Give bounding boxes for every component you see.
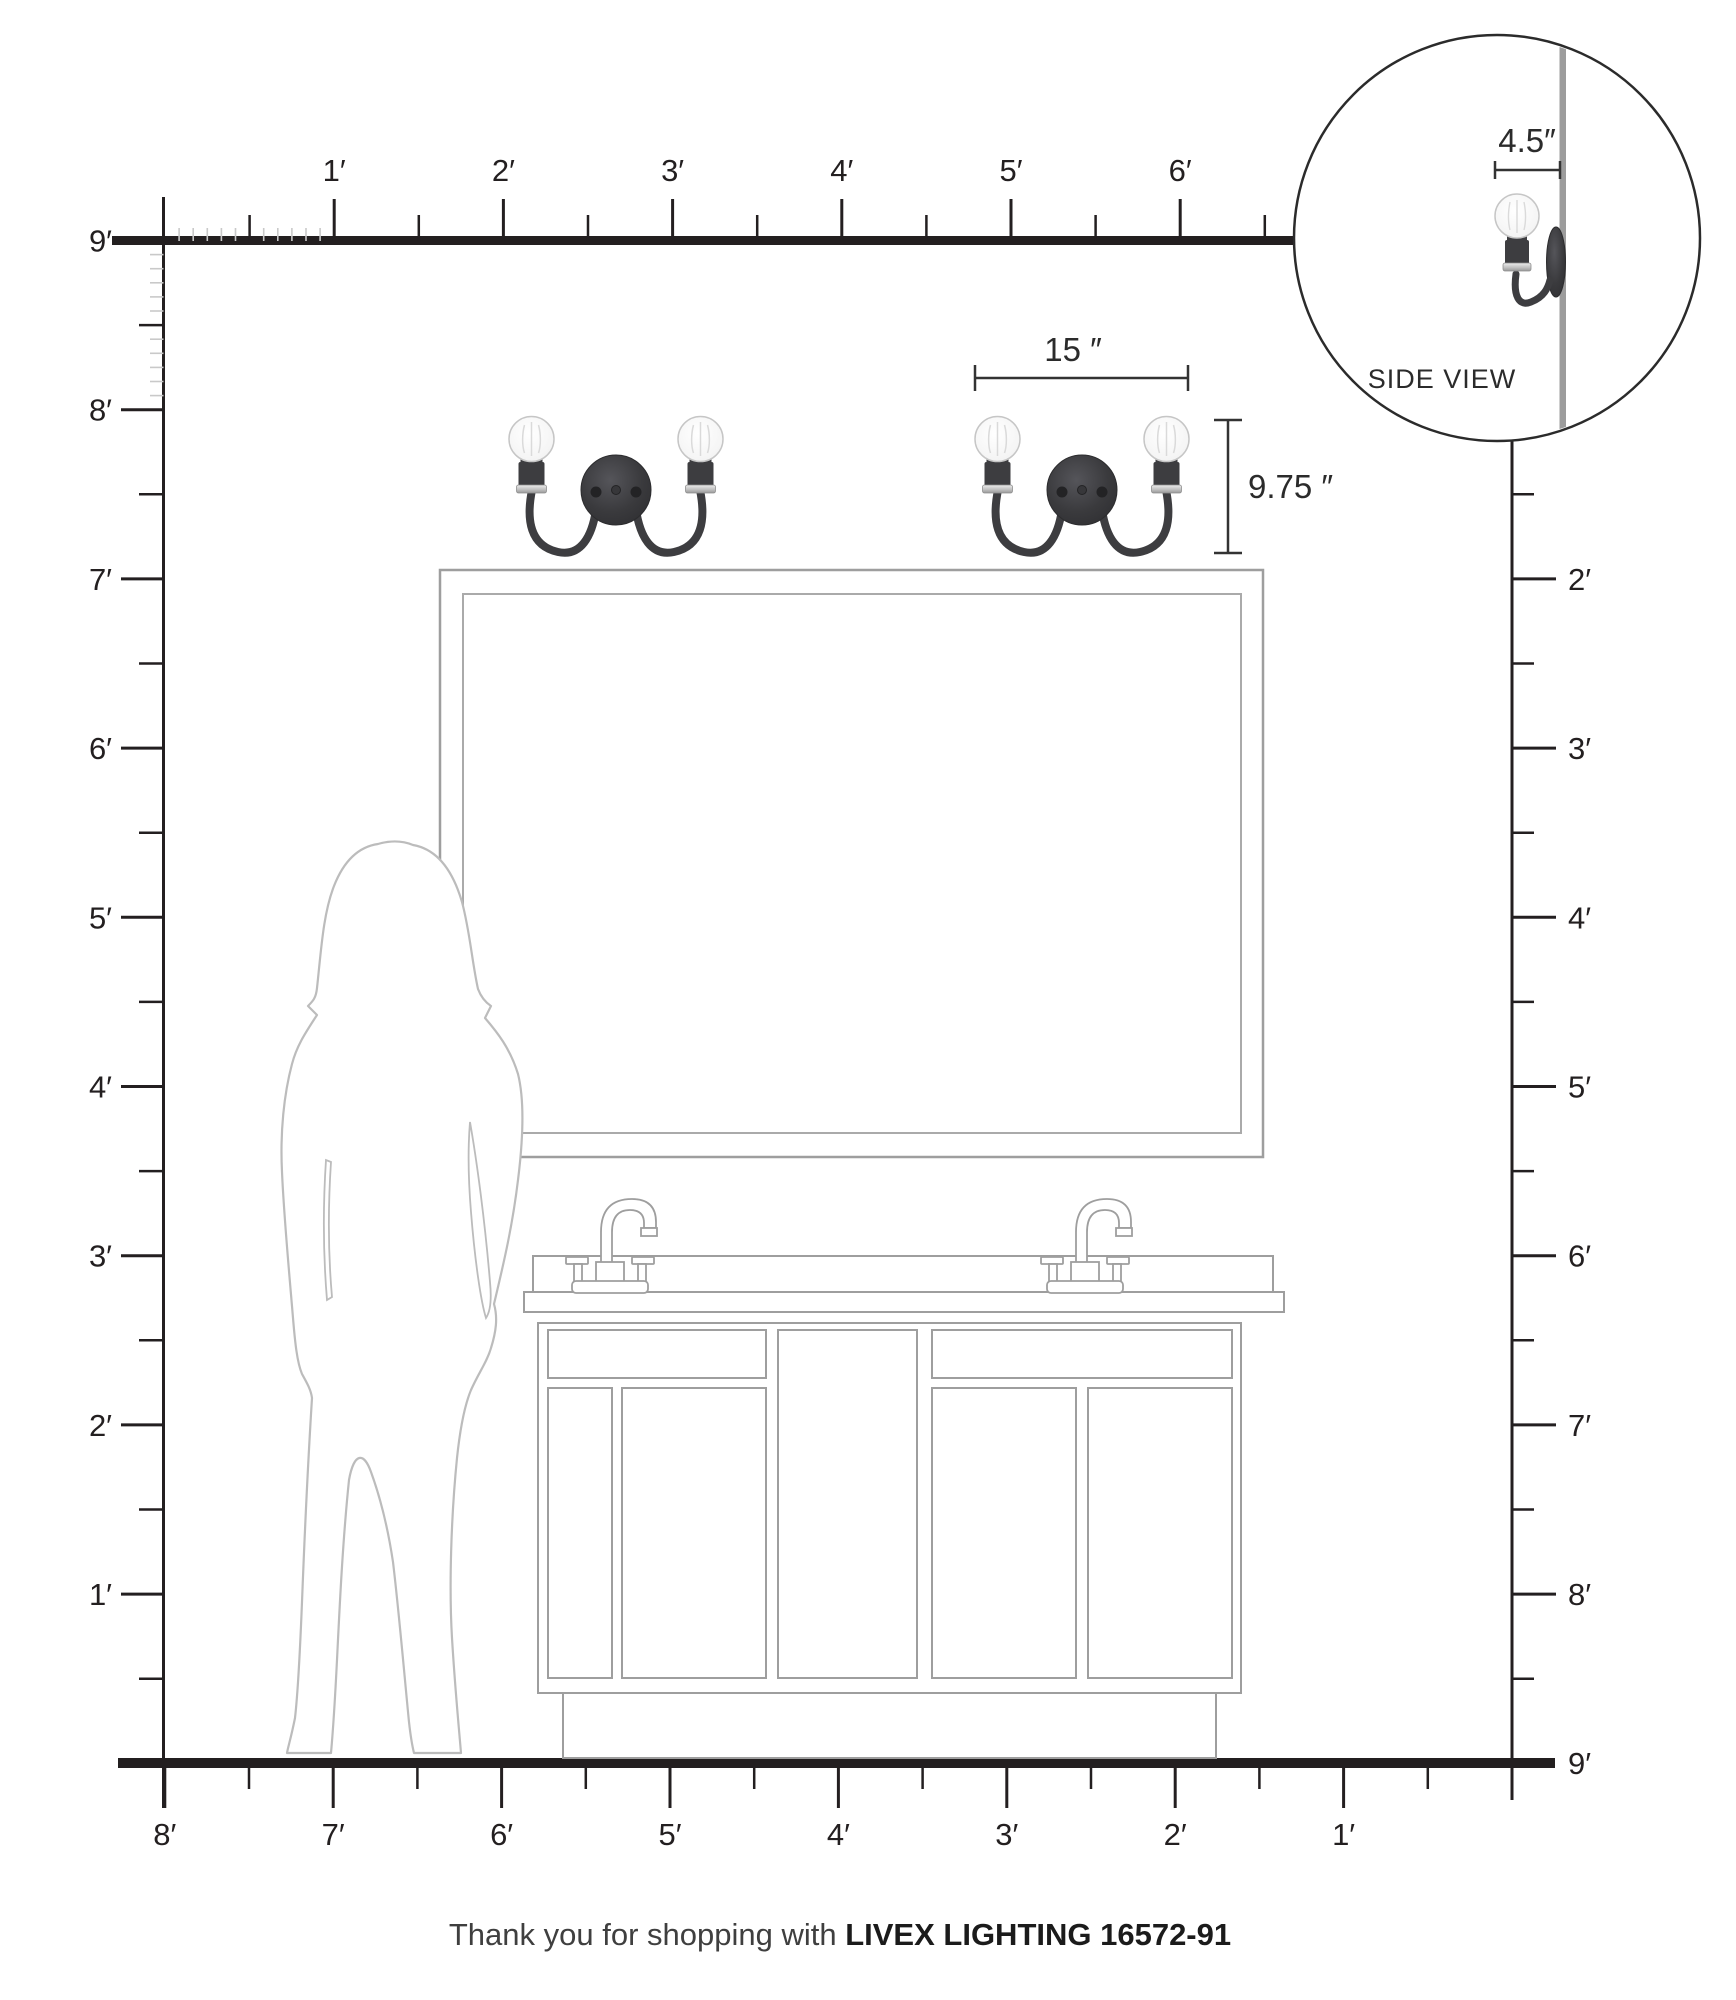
ruler-label: 8′	[1568, 1577, 1591, 1612]
ruler-label: 6′	[1568, 1239, 1591, 1274]
footer-text: Thank you for shopping with LIVEX LIGHTI…	[449, 1917, 1231, 1952]
toe-kick	[563, 1693, 1216, 1758]
ruler-label: 3′	[89, 1239, 112, 1274]
diagram-page: 1′2′3′4′5′6′ 9′8′7′6′5′4′3′2′1′ 2′3′4′5′…	[0, 0, 1736, 2000]
ruler-label: 3′	[661, 153, 684, 188]
cabinet-door	[932, 1388, 1076, 1678]
ruler-label: 6′	[490, 1817, 513, 1852]
cabinet-door	[1088, 1388, 1232, 1678]
ruler-label: 8′	[153, 1817, 176, 1852]
ruler-label: 2′	[492, 153, 515, 188]
ruler-label: 4′	[827, 1817, 850, 1852]
ruler-label: 1′	[323, 153, 346, 188]
ruler-label: 5′	[658, 1817, 681, 1852]
width-dimension: 15 ″	[975, 331, 1188, 391]
bottom-ruler-ticks: 8′7′6′5′4′3′2′1′	[153, 1768, 1428, 1852]
side-socket	[1505, 240, 1529, 266]
side-view-inset: 4.5″ SIDE VIEW	[1294, 35, 1700, 441]
footer-thankyou: Thank you for shopping with	[449, 1917, 845, 1952]
sconce-right	[975, 417, 1189, 553]
side-view-label: SIDE VIEW	[1368, 364, 1517, 394]
ruler-label: 2′	[89, 1408, 112, 1443]
faucet-right	[1041, 1199, 1132, 1293]
ruler-label: 7′	[89, 562, 112, 597]
floor-ruler-line	[118, 1758, 1555, 1768]
height-dimension-value: 9.75 ″	[1248, 468, 1333, 505]
ruler-label: 4′	[89, 1070, 112, 1105]
drawer-front-left	[548, 1330, 766, 1378]
height-dimension: 9.75 ″	[1214, 420, 1333, 553]
ruler-label: 4′	[1568, 900, 1591, 935]
depth-dimension-value: 4.5″	[1498, 122, 1556, 159]
top-ruler-ticks: 1′2′3′4′5′6′	[179, 153, 1265, 241]
center-panel	[778, 1330, 917, 1678]
ruler-label: 2′	[1164, 1817, 1187, 1852]
width-dimension-value: 15 ″	[1044, 331, 1102, 368]
vanity-cabinet	[524, 1199, 1284, 1758]
footer-product-id: LIVEX LIGHTING 16572-91	[845, 1917, 1231, 1952]
countertop	[524, 1292, 1284, 1312]
ruler-label: 5′	[999, 153, 1022, 188]
ruler-label: 6′	[1169, 153, 1192, 188]
ruler-label: 3′	[995, 1817, 1018, 1852]
left-ruler-ticks: 9′8′7′6′5′4′3′2′1′	[89, 224, 164, 1679]
mirror-outer-frame	[440, 570, 1263, 1157]
ruler-label: 2′	[1568, 562, 1591, 597]
ruler-label: 8′	[89, 393, 112, 428]
cabinet-door	[622, 1388, 766, 1678]
ruler-label: 9′	[1568, 1746, 1591, 1781]
dimension-diagram: 1′2′3′4′5′6′ 9′8′7′6′5′4′3′2′1′ 2′3′4′5′…	[0, 0, 1736, 2000]
ruler-label: 3′	[1568, 731, 1591, 766]
ruler-label: 1′	[1332, 1817, 1355, 1852]
right-ruler-ticks: 2′3′4′5′6′7′8′9′	[1512, 494, 1591, 1781]
ruler-label: 7′	[1568, 1408, 1591, 1443]
faucet-left	[566, 1199, 657, 1293]
ruler-label: 7′	[322, 1817, 345, 1852]
ruler-label: 6′	[89, 731, 112, 766]
ruler-label: 1′	[89, 1577, 112, 1612]
ruler-label: 9′	[89, 224, 112, 259]
depth-dimension: 4.5″	[1495, 122, 1560, 179]
ruler-label: 4′	[830, 153, 853, 188]
drawer-front-right	[932, 1330, 1232, 1378]
vanity-mirror	[440, 570, 1263, 1157]
side-chrome-ring	[1503, 263, 1531, 271]
sconce-left	[509, 417, 723, 553]
ruler-label: 5′	[89, 900, 112, 935]
ruler-label: 5′	[1568, 1070, 1591, 1105]
cabinet-door	[548, 1388, 612, 1678]
